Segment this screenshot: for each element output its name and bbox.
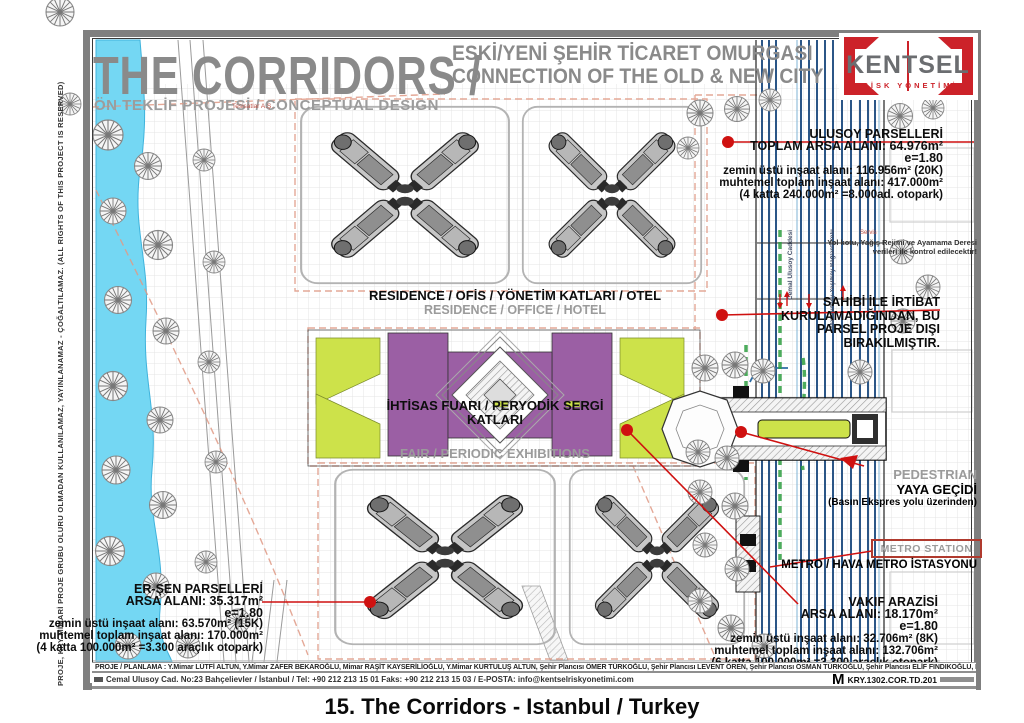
- logo-tagline: RİSK YÖNETİMİ: [862, 81, 957, 90]
- pedestrian-label: PEDESTRIAN YAYA GEÇİDİ (Basın Ekspres yo…: [828, 467, 977, 508]
- road-level-note: Yol kotu, Yağış Rejimi ve Ayamama Deresi…: [827, 239, 977, 256]
- vakif-line: e=1.80: [711, 620, 938, 632]
- sahibi-note: SAHİBİ İLE İRTİBAT KURULAMADIĞINDAN, BU …: [781, 296, 940, 350]
- ulusoy-line: muhtemel toplam inşaat alanı: 417.000m²: [719, 177, 943, 189]
- document-code: KRY.1302.COR.TD.201: [848, 675, 937, 685]
- fair-label-line2: KATLARI: [355, 413, 635, 427]
- ersen-parcel-note: ER-ŞEN PARSELLERİ ARSA ALANI: 35.317m² e…: [18, 584, 263, 655]
- vakif-line: muhtemel toplam inşaat alanı: 132.706m²: [711, 645, 938, 657]
- sahibi-line: KURULAMADIĞINDAN, BU: [781, 310, 940, 324]
- street-label-cemal-ulusoy: Cemal Ulusoy Caddesi: [787, 228, 794, 300]
- fair-label-line1: İHTİSAS FUARI / PERYODİK SERGİ: [355, 399, 635, 413]
- ulusoy-parcel-note: ULUSOY PARSELLERİ TOPLAM ARSA ALANI: 64.…: [719, 128, 943, 201]
- residence-label-tr: RESIDENCE / OFİS / YÖNETİM KATLARI / OTE…: [320, 288, 710, 303]
- page-title-right: ESKİ/YENİ ŞEHİR TİCARET OMURGASI CONNECT…: [452, 42, 823, 88]
- credits-line: PROJE / PLANLAMA : Y.Mimar LÜTFİ ALTUN, …: [92, 663, 976, 671]
- vakif-parcel-note: VAKIF ARAZİSİ ARSA ALANI: 18.170m² e=1.8…: [711, 596, 938, 669]
- sahibi-line: PARSEL PROJE DIŞI: [781, 323, 940, 337]
- fair-label: İHTİSAS FUARI / PERYODİK SERGİ KATLARI: [355, 399, 635, 426]
- footer-marker-icon: [94, 677, 103, 682]
- footer-endbar: [940, 677, 974, 682]
- ersen-line: (4 katta 100.000m² =3.300 araçlık otopar…: [18, 643, 263, 655]
- address-row: Cemal Ulusoy Cad. No:23 Bahçelievler / İ…: [92, 671, 976, 689]
- residence-label-en: RESIDENCE / OFFICE / HOTEL: [320, 303, 710, 317]
- sahibi-line: SAHİBİ İLE İRTİBAT: [781, 296, 940, 310]
- title-right-line2: CONNECTION OF THE OLD & NEW CITY: [452, 65, 823, 88]
- pedestrian-label-tr: YAYA GEÇİDİ: [828, 482, 977, 497]
- sahibi-line: BIRAKILMIŞTIR.: [781, 337, 940, 351]
- image-caption: 15. The Corridors - Istanbul / Turkey: [0, 694, 1024, 720]
- ulusoy-line: (4 katta 240.000m² =8.000ad. otopark): [719, 189, 943, 201]
- office-address: Cemal Ulusoy Cad. No:23 Bahçelievler / İ…: [106, 675, 634, 684]
- ulusoy-line: zemin üstü inşaat alanı: 116.956m² (20K): [719, 165, 943, 177]
- tiny-label-tesisatlar: Tesisatlar A.Ş.: [232, 103, 273, 110]
- tiny-label-servis: Servis: [860, 230, 877, 236]
- metro-station-label: METRO STATION: [871, 539, 982, 558]
- fair-label-en: FAIR / PERIODIC EXHIBITIONS: [345, 446, 645, 461]
- logo-name: KENTSEL: [846, 51, 970, 79]
- pedestrian-label-note: (Basın Ekspres yolu üzerinden): [828, 497, 977, 508]
- pedestrian-label-en: PEDESTRIAN: [828, 467, 977, 482]
- residence-label: RESIDENCE / OFİS / YÖNETİM KATLARI / OTE…: [320, 288, 710, 317]
- vakif-line: zemin üstü inşaat alanı: 32.706m² (8K): [711, 633, 938, 645]
- title-block: PROJE / PLANLAMA : Y.Mimar LÜTFİ ALTUN, …: [92, 662, 976, 690]
- title-right-line1: ESKİ/YENİ ŞEHİR TİCARET OMURGASI: [452, 42, 823, 65]
- metro-label-tr: METRO / HAVA METRO İSTASYONU: [781, 559, 977, 571]
- kentsel-logo-icon: KENTSEL RİSK YÖNETİMİ: [839, 33, 978, 100]
- road-note-line: verileri ile kontrol edilecektir!: [827, 248, 977, 257]
- kentsel-logo: KENTSEL RİSK YÖNETİMİ: [839, 33, 978, 100]
- ulusoy-line: e=1.80: [719, 152, 943, 164]
- m-logo: M: [832, 675, 845, 685]
